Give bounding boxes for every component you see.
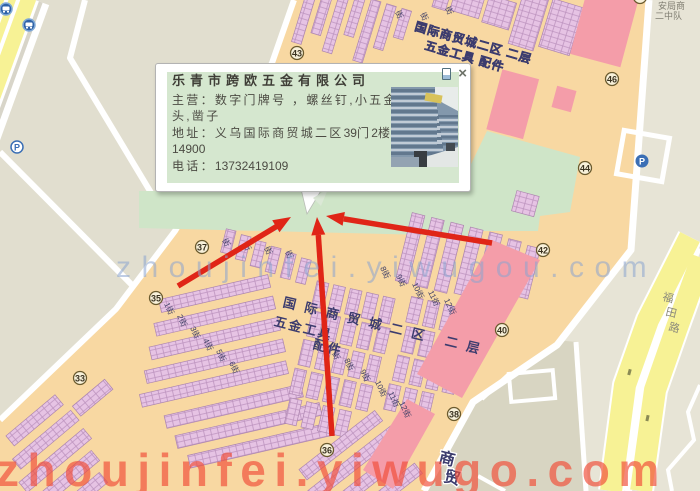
- svg-text:二中队: 二中队: [655, 10, 682, 21]
- svg-text:38: 38: [449, 410, 459, 420]
- svg-text:P: P: [14, 143, 20, 153]
- svg-text:33: 33: [75, 374, 85, 384]
- svg-text:35: 35: [151, 294, 161, 304]
- svg-text:44: 44: [580, 164, 590, 174]
- svg-text:46: 46: [607, 75, 617, 85]
- svg-text:P: P: [639, 157, 645, 167]
- svg-text:40: 40: [497, 326, 507, 336]
- svg-text:43: 43: [292, 49, 302, 59]
- svg-text:安局商: 安局商: [658, 0, 685, 11]
